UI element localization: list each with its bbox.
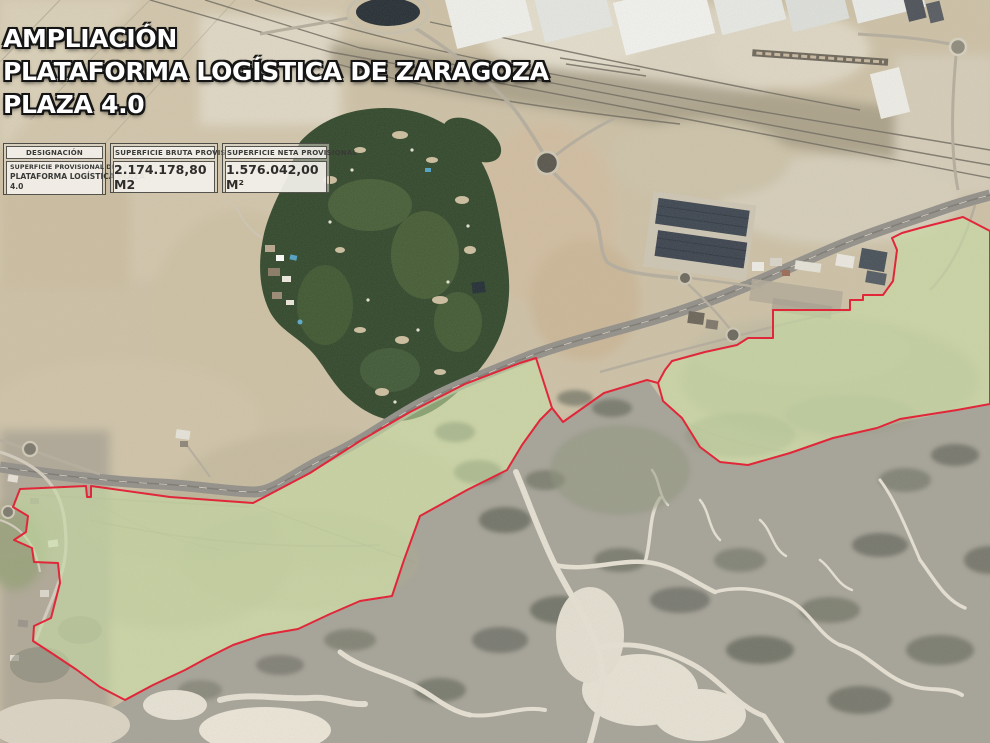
superficie-neta-value: 1.576.042,00 M² bbox=[225, 161, 327, 193]
surface-info-table: DESIGNACIÓN SUPERFICIE PROVISIONAL DEL Á… bbox=[3, 143, 330, 195]
map-title-line-1: AMPLIACIÓN bbox=[3, 22, 549, 55]
designacion-value: SUPERFICIE PROVISIONAL DEL ÁMBITO PLATAF… bbox=[6, 161, 103, 195]
aerial-plan-figure: AMPLIACIÓN PLATAFORMA LOGÍSTICA DE ZARAG… bbox=[0, 0, 990, 743]
superficie-bruta-header: SUPERFICIE BRUTA PROVISIONAL bbox=[113, 146, 215, 159]
designacion-value-line-1: SUPERFICIE PROVISIONAL DEL ÁMBITO bbox=[10, 164, 99, 172]
designacion-value-line-2: PLATAFORMA LOGÍSTICA PLAZA bbox=[10, 172, 99, 182]
superficie-neta-column: SUPERFICIE NETA PROVISIONAL 1.576.042,00… bbox=[222, 143, 330, 193]
designacion-column: DESIGNACIÓN SUPERFICIE PROVISIONAL DEL Á… bbox=[3, 143, 106, 195]
superficie-bruta-value: 2.174.178,80 M2 bbox=[113, 161, 215, 193]
superficie-bruta-column: SUPERFICIE BRUTA PROVISIONAL 2.174.178,8… bbox=[110, 143, 218, 193]
map-title: AMPLIACIÓN PLATAFORMA LOGÍSTICA DE ZARAG… bbox=[3, 22, 549, 121]
map-title-line-3: PLAZA 4.0 bbox=[3, 88, 549, 121]
designacion-value-line-3: 4.0 bbox=[10, 182, 99, 192]
superficie-neta-header: SUPERFICIE NETA PROVISIONAL bbox=[225, 146, 327, 159]
map-title-line-2: PLATAFORMA LOGÍSTICA DE ZARAGOZA bbox=[3, 55, 549, 88]
designacion-header: DESIGNACIÓN bbox=[6, 146, 103, 159]
